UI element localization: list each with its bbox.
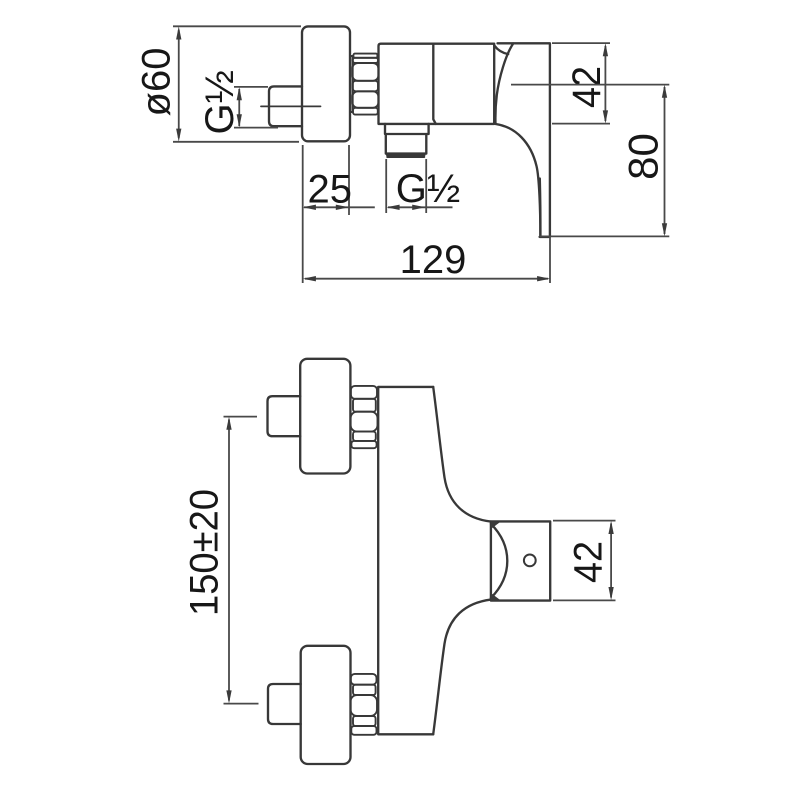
svg-text:129: 129 — [400, 238, 467, 282]
svg-text:25: 25 — [308, 168, 353, 212]
svg-text:42: 42 — [566, 541, 610, 583]
svg-text:42: 42 — [565, 66, 609, 108]
svg-text:ø60: ø60 — [135, 48, 179, 117]
svg-text:G½: G½ — [198, 70, 242, 134]
svg-text:80: 80 — [620, 133, 667, 180]
svg-text:150±20: 150±20 — [183, 489, 227, 616]
svg-text:G½: G½ — [396, 167, 460, 211]
